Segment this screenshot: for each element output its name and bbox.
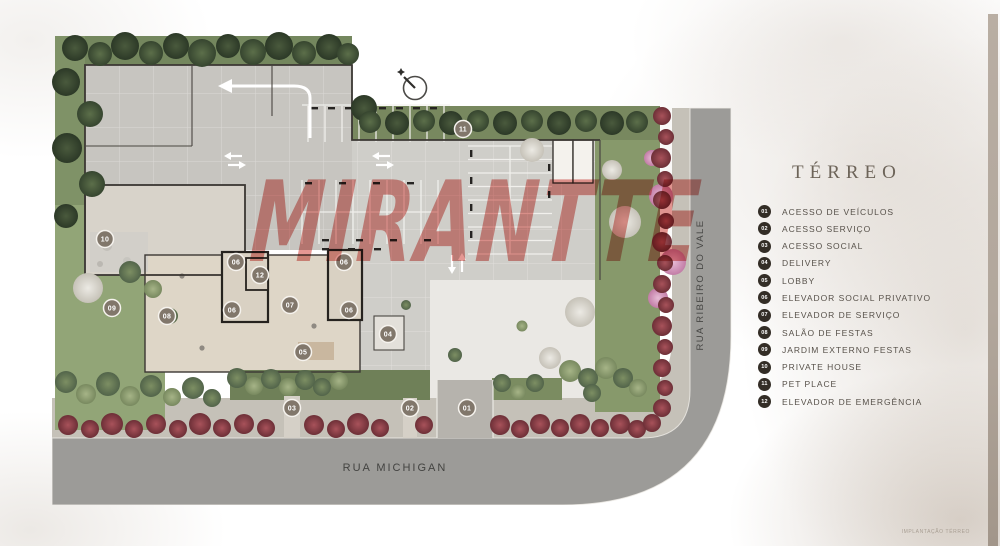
legend-item-number-badge: 11	[758, 378, 771, 391]
legend-item: 11PET PLACE	[758, 378, 988, 391]
legend-item-number-badge: 02	[758, 222, 771, 235]
right-edge-accent-bar	[988, 14, 998, 546]
plan-marker: 06	[341, 302, 358, 319]
street-name-rua-ribeiro-do-vale: RUA RIBEIRO DO VALE	[695, 220, 706, 351]
svg-text:08: 08	[163, 314, 171, 321]
legend-item-label: PRIVATE HOUSE	[782, 362, 862, 372]
legend-item: 07ELEVADOR DE SERVIÇO	[758, 309, 988, 322]
legend-panel: TÉRREO 01ACESSO DE VEÍCULOS02ACESSO SERV…	[758, 162, 988, 413]
legend-item-number-badge: 07	[758, 309, 771, 322]
plan-marker: 02	[402, 400, 419, 417]
plan-caption: IMPLANTAÇÃO TÉRREO	[902, 529, 970, 535]
svg-text:10: 10	[101, 237, 109, 244]
legend-item-label: ELEVADOR DE EMERGÊNCIA	[782, 397, 922, 407]
legend-item-number-badge: 01	[758, 205, 771, 218]
svg-text:09: 09	[108, 306, 116, 313]
legend-item-number-badge: 10	[758, 361, 771, 374]
legend-item-label: PET PLACE	[782, 379, 837, 389]
legend-item: 10PRIVATE HOUSE	[758, 361, 988, 374]
plan-marker: 10	[97, 231, 114, 248]
svg-text:06: 06	[345, 308, 353, 315]
legend-item-label: ACESSO DE VEÍCULOS	[782, 207, 894, 217]
legend-item-number-badge: 09	[758, 343, 771, 356]
svg-text:05: 05	[299, 350, 307, 357]
legend-item-number-badge: 05	[758, 274, 771, 287]
svg-text:06: 06	[340, 260, 348, 267]
legend-item-label: ELEVADOR DE SERVIÇO	[782, 310, 900, 320]
svg-text:06: 06	[232, 260, 240, 267]
plan-marker: 11	[455, 121, 472, 138]
legend-item-number-badge: 04	[758, 257, 771, 270]
legend-item: 06ELEVADOR SOCIAL PRIVATIVO	[758, 291, 988, 304]
page: RUA MICHIGAN RUA RIBEIRO DO VALE 0102030…	[0, 0, 1000, 546]
legend-items: 01ACESSO DE VEÍCULOS02ACESSO SERVIÇO03AC…	[758, 205, 988, 408]
legend-item-number-badge: 06	[758, 291, 771, 304]
legend-item: 08SALÃO DE FESTAS	[758, 326, 988, 339]
plan-marker: 03	[284, 400, 301, 417]
svg-text:04: 04	[384, 332, 392, 339]
legend-item: 05LOBBY	[758, 274, 988, 287]
plan-marker: 04	[380, 326, 397, 343]
legend-item: 01ACESSO DE VEÍCULOS	[758, 205, 988, 218]
street-name-rua-michigan: RUA MICHIGAN	[343, 462, 448, 474]
legend-item: 02ACESSO SERVIÇO	[758, 222, 988, 235]
svg-text:02: 02	[406, 406, 414, 413]
site-plan: RUA MICHIGAN RUA RIBEIRO DO VALE 0102030…	[52, 26, 735, 505]
plan-marker: 01	[459, 400, 476, 417]
legend-item-number-badge: 08	[758, 326, 771, 339]
legend-item-label: ACESSO SERVIÇO	[782, 224, 871, 234]
svg-text:03: 03	[288, 406, 296, 413]
legend-item-label: ELEVADOR SOCIAL PRIVATIVO	[782, 293, 931, 303]
legend-item-label: ACESSO SOCIAL	[782, 241, 863, 251]
plan-marker: 08	[159, 308, 176, 325]
legend-item-label: SALÃO DE FESTAS	[782, 328, 874, 338]
svg-text:12: 12	[256, 273, 264, 280]
legend-item: 03ACESSO SOCIAL	[758, 240, 988, 253]
legend-item: 04DELIVERY	[758, 257, 988, 270]
plan-marker: 06	[224, 302, 241, 319]
plan-marker: 05	[295, 344, 312, 361]
plan-marker: 06	[228, 254, 245, 271]
legend-item: 09JARDIM EXTERNO FESTAS	[758, 343, 988, 356]
plan-marker: 06	[336, 254, 353, 271]
svg-text:01: 01	[463, 406, 471, 413]
legend-item-label: JARDIM EXTERNO FESTAS	[782, 345, 912, 355]
legend-item-number-badge: 12	[758, 395, 771, 408]
plan-marker: 07	[282, 297, 299, 314]
legend-item-label: DELIVERY	[782, 258, 832, 268]
svg-text:11: 11	[459, 127, 467, 134]
svg-text:06: 06	[228, 308, 236, 315]
north-compass-icon	[397, 68, 427, 100]
legend-title: TÉRREO	[792, 162, 988, 184]
legend-item: 12ELEVADOR DE EMERGÊNCIA	[758, 395, 988, 408]
legend-item-label: LOBBY	[782, 276, 815, 286]
plan-marker: 09	[104, 300, 121, 317]
legend-item-number-badge: 03	[758, 240, 771, 253]
plan-marker: 12	[252, 267, 269, 284]
svg-text:07: 07	[286, 303, 294, 310]
